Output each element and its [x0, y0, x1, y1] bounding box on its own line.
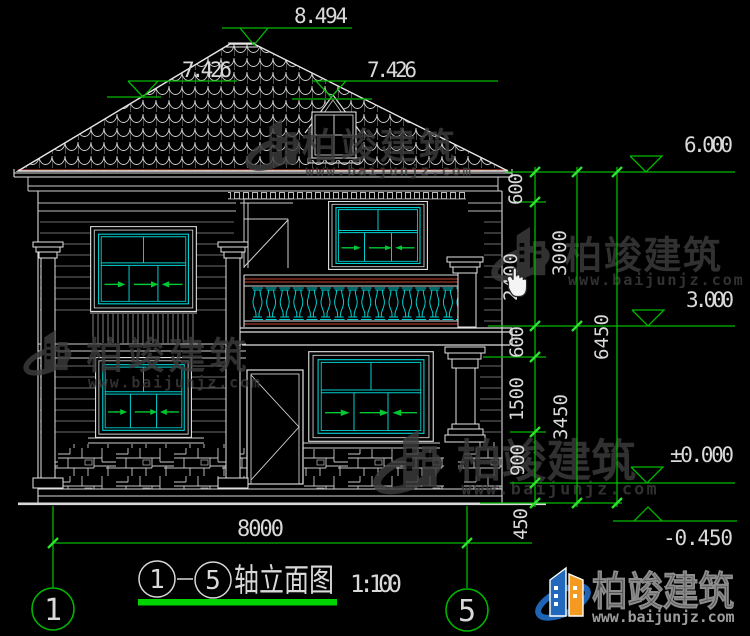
- dim-3450: 3450: [550, 394, 572, 440]
- dim-dormer: 7.426: [367, 58, 417, 82]
- dentil-band: [228, 192, 466, 200]
- axis-bubble-left: 1: [44, 593, 62, 628]
- dim-6450: 6450: [591, 314, 613, 360]
- dim-450: 450: [510, 508, 532, 540]
- watermark-right: 柏竣建筑 www.baijunjz.com: [491, 227, 745, 289]
- logo-url: www.baijunjz.com: [592, 608, 736, 626]
- logo-building-icon: [550, 568, 566, 616]
- drawing-title: 1 5 轴立面图 1:100: [138, 561, 402, 606]
- dim-slope-left: 7.426: [182, 58, 232, 82]
- title-underline: [138, 599, 337, 606]
- watermark-url: www.baijunjz.com: [305, 163, 472, 179]
- title-name: 轴立面图: [234, 562, 334, 598]
- title-axis-end: 5: [205, 566, 221, 596]
- watermark-url: www.baijunjz.com: [568, 271, 745, 289]
- cad-elevation-screenshot: 柏竣建筑 www.baijunjz.com 柏竣建筑 www.baijunjz.…: [0, 0, 750, 636]
- dim-8000: 8000: [237, 517, 284, 542]
- window-2f-left: [91, 227, 197, 312]
- dim-600a: 600: [505, 173, 527, 205]
- dim-1500: 1500: [506, 377, 528, 421]
- level-zero: ±0.000: [670, 443, 734, 467]
- window-1f-center: [309, 352, 433, 442]
- level-eave: 6.000: [684, 133, 733, 157]
- level-ground: -0.450: [663, 526, 733, 550]
- title-axis-start: 1: [149, 565, 165, 595]
- watermark-url: www.baijunjz.com: [88, 374, 262, 391]
- dim-ridge: 8.494: [294, 4, 348, 28]
- level-mid: 3.000: [686, 288, 734, 312]
- window-2f-center: [329, 201, 428, 269]
- balusters: [252, 288, 467, 320]
- dim-900: 900: [507, 444, 529, 476]
- ground-line: [18, 503, 546, 506]
- dim-3000: 3000: [549, 230, 571, 276]
- watermark-url: www.baijunjz.com: [461, 478, 659, 498]
- axis-bubble-right: 5: [458, 594, 476, 629]
- watermark-left: 柏竣建筑 www.baijunjz.com: [23, 330, 262, 391]
- site-logo: 柏竣建筑 www.baijunjz.com: [534, 568, 736, 626]
- elevation-drawing: 柏竣建筑 www.baijunjz.com 柏竣建筑 www.baijunjz.…: [0, 0, 750, 636]
- entry-panel: [240, 199, 293, 268]
- dim-600b: 600: [506, 326, 528, 358]
- title-scale: 1:100: [350, 570, 402, 598]
